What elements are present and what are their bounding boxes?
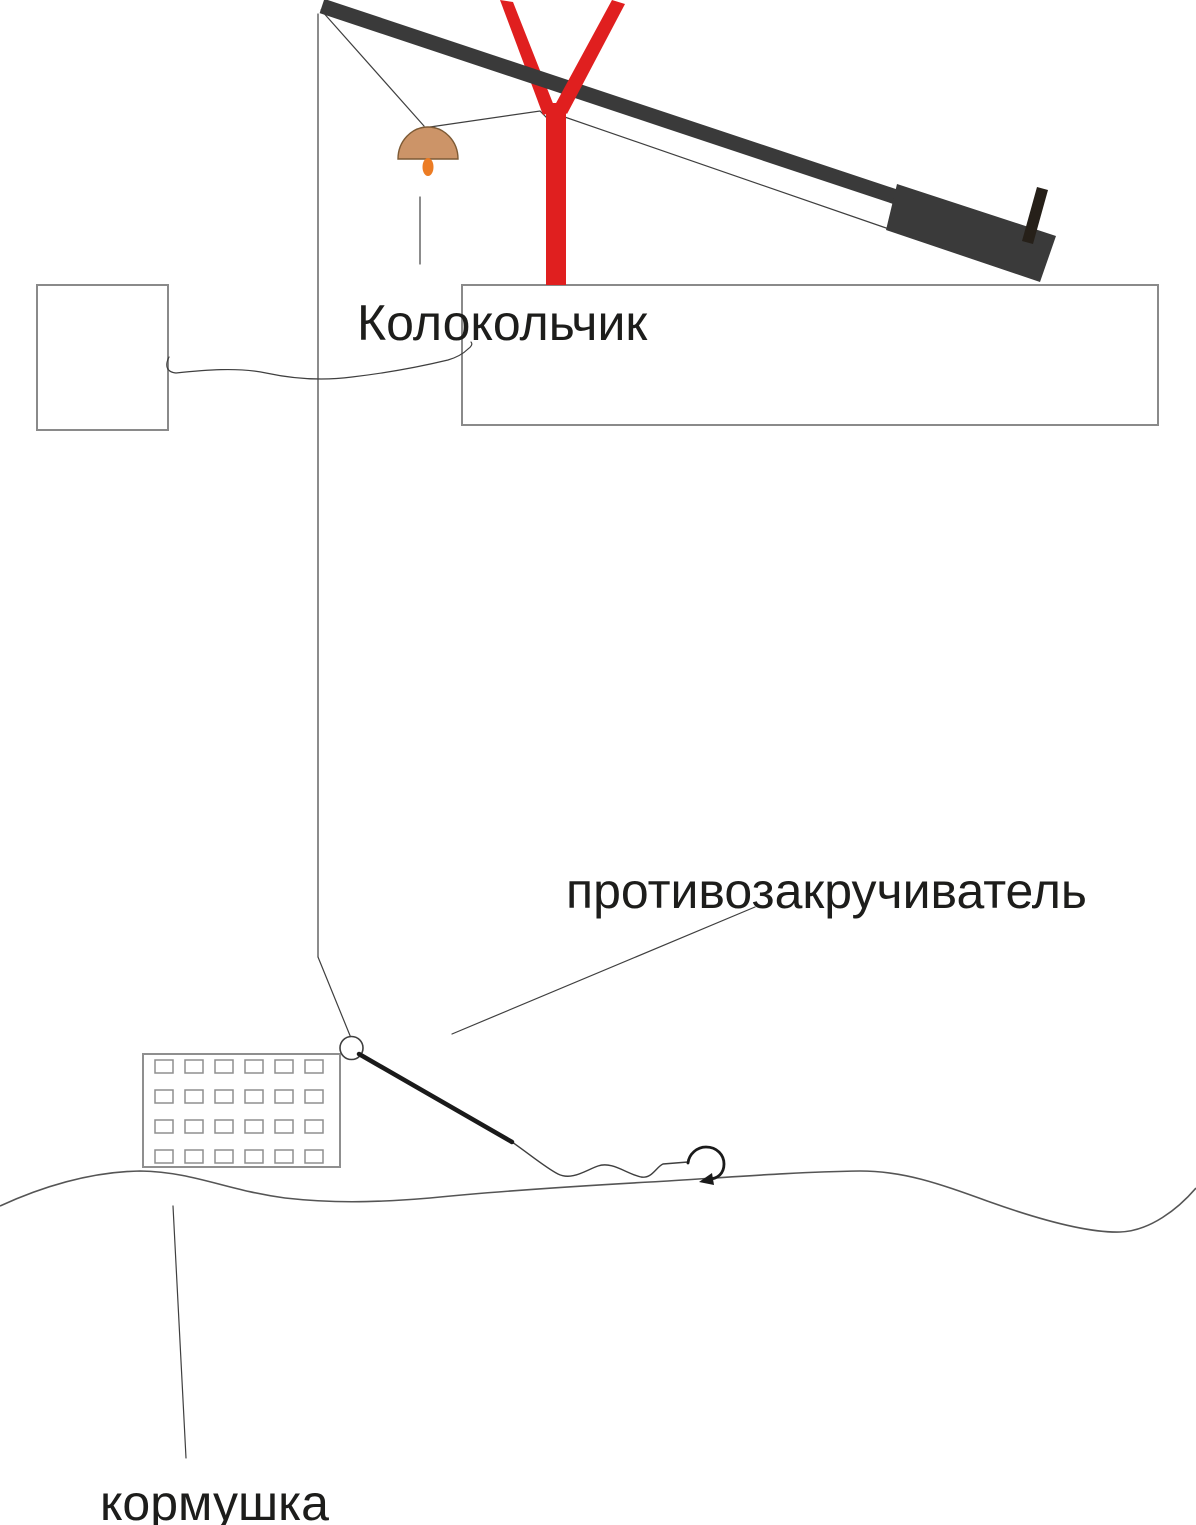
feeder-cell xyxy=(275,1090,293,1103)
feeder-cell xyxy=(185,1090,203,1103)
feeder-cell xyxy=(185,1120,203,1133)
bell-icon xyxy=(398,127,458,176)
feeder-cell xyxy=(215,1120,233,1133)
left-box xyxy=(37,285,168,430)
bell-label: Колокольчик xyxy=(357,298,647,348)
fishing-rod-blank xyxy=(322,6,905,200)
feeder-cell xyxy=(155,1060,173,1073)
feeder-cell xyxy=(215,1150,233,1163)
main-line-lower xyxy=(318,957,351,1038)
anti-twist-label: противозакручиватель xyxy=(566,866,1087,916)
leader-line xyxy=(512,1142,688,1177)
feeder-cell xyxy=(275,1150,293,1163)
feeder-pointer-line xyxy=(173,1206,186,1458)
feeder-icon xyxy=(143,1054,340,1167)
feeder-cell xyxy=(215,1090,233,1103)
diagram-canvas xyxy=(0,0,1196,1525)
feeder-cell xyxy=(245,1150,263,1163)
feeder-cell xyxy=(155,1150,173,1163)
feeder-label: кормушка xyxy=(100,1478,329,1525)
line-bell-to-rest xyxy=(430,108,552,127)
ground-line xyxy=(0,1171,1196,1232)
feeder-cell xyxy=(305,1060,323,1073)
anti-twist-tube xyxy=(359,1054,512,1142)
feeder-cell xyxy=(275,1060,293,1073)
feeder-cell xyxy=(305,1090,323,1103)
feeder-cell xyxy=(185,1060,203,1073)
feeder-cell xyxy=(305,1120,323,1133)
feeder-cell xyxy=(275,1120,293,1133)
bell-dome xyxy=(398,127,458,159)
feeder-cell xyxy=(245,1090,263,1103)
feeder-cell xyxy=(245,1060,263,1073)
rod-rest-left-prong xyxy=(500,0,556,115)
lines xyxy=(167,10,889,1458)
bell-clapper xyxy=(423,158,434,176)
hook-icon xyxy=(688,1147,724,1179)
rod-rest-stem xyxy=(546,103,566,285)
feeder-cell xyxy=(155,1090,173,1103)
feeder-cell xyxy=(305,1150,323,1163)
feeder-cell xyxy=(155,1120,173,1133)
anti-twist-pointer-line xyxy=(452,907,755,1034)
feeder-cell xyxy=(245,1120,263,1133)
feeder-cell xyxy=(185,1150,203,1163)
feeder-cell xyxy=(215,1060,233,1073)
fishing-rig-diagram: Колокольчик противозакручиватель кормушк… xyxy=(0,0,1196,1525)
